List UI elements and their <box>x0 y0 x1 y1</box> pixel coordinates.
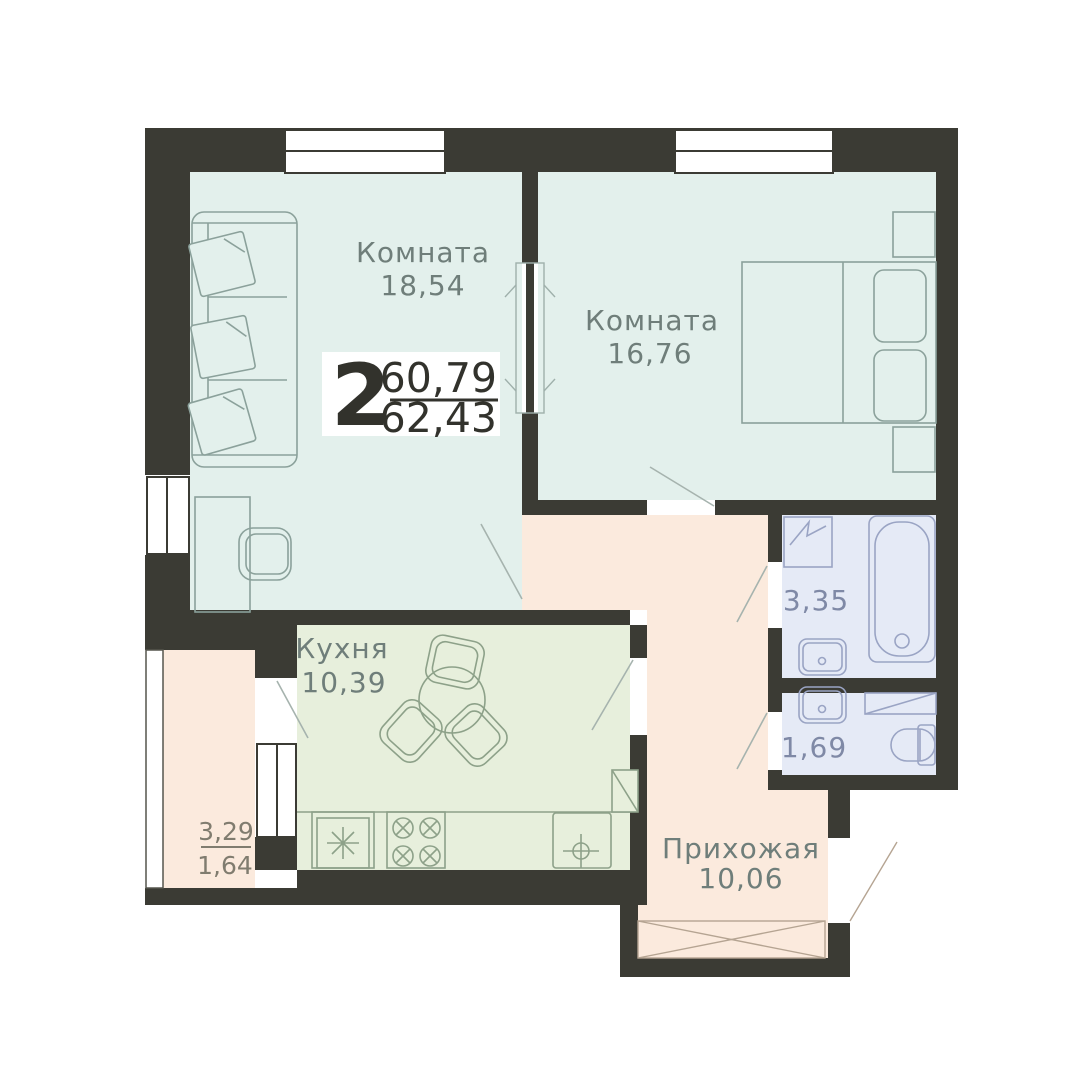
vent-duct-wc <box>865 693 936 714</box>
balcony-area-top: 3,29 <box>198 817 254 846</box>
room-area-living: 18,54 <box>380 269 465 302</box>
floor-plan: 2 60,79 62,43 Комната 18,54 Комната 16,7… <box>0 0 1079 1080</box>
room-area-hallway: 10,06 <box>698 862 783 895</box>
unit-area-bottom: 62,43 <box>380 394 497 442</box>
balcony-glazing <box>146 650 163 888</box>
room-area-bedroom: 16,76 <box>607 337 692 370</box>
room-area-bathroom: 3,35 <box>783 584 849 617</box>
room-label-hallway: Прихожая <box>662 832 820 865</box>
room-area-kitchen: 10,39 <box>301 666 386 699</box>
unit-badge: 2 60,79 62,43 <box>322 346 500 446</box>
room-label-bedroom: Комната <box>585 304 719 337</box>
hallway-floor <box>522 515 768 610</box>
room-label-kitchen: Кухня <box>295 632 388 665</box>
room-label-living: Комната <box>356 236 490 269</box>
sofa-pillow <box>190 315 255 379</box>
window-balcony <box>257 744 296 837</box>
room-area-wc: 1,69 <box>781 731 847 764</box>
vent-duct-kitchen <box>612 770 638 812</box>
window-left <box>147 477 189 554</box>
entrance-door-swing <box>850 842 897 921</box>
hallway-floor <box>638 905 828 958</box>
floor-plan-page: 2 60,79 62,43 Комната 18,54 Комната 16,7… <box>0 0 1079 1080</box>
bed-pillow <box>874 270 926 342</box>
balcony-area-bottom: 1,64 <box>197 851 253 880</box>
window-top-left <box>285 130 445 173</box>
window-top-right <box>675 130 833 173</box>
bed-pillow <box>874 350 926 421</box>
